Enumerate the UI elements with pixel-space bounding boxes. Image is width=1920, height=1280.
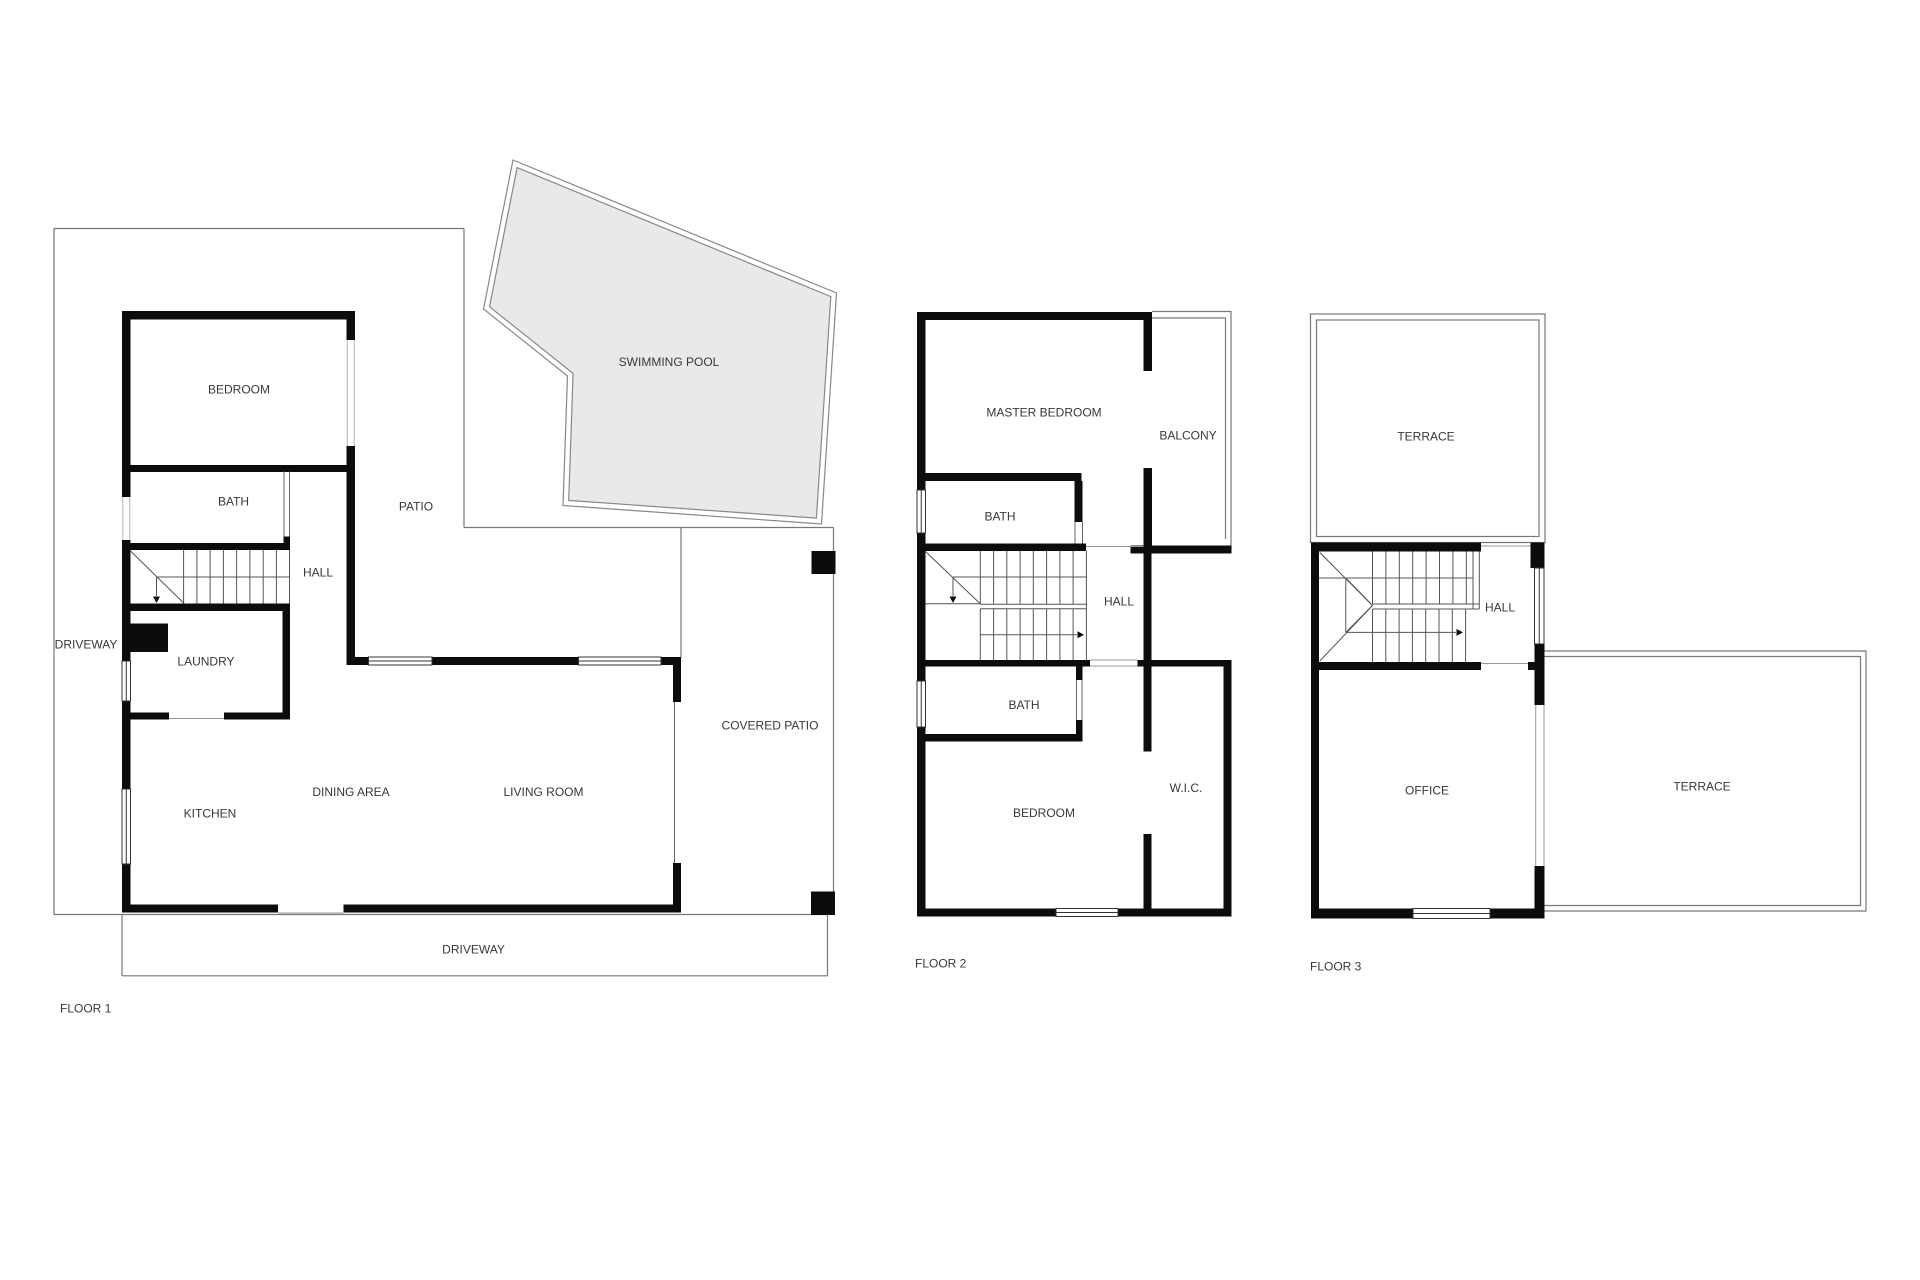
svg-text:DINING AREA: DINING AREA [312, 785, 389, 799]
svg-text:HALL: HALL [303, 566, 333, 580]
svg-text:BATH: BATH [984, 510, 1015, 524]
svg-text:MASTER BEDROOM: MASTER BEDROOM [986, 406, 1101, 420]
svg-text:HALL: HALL [1485, 601, 1515, 615]
svg-text:DRIVEWAY: DRIVEWAY [442, 943, 505, 957]
svg-text:TERRACE: TERRACE [1673, 780, 1730, 794]
svg-text:SWIMMING POOL: SWIMMING POOL [619, 355, 720, 369]
svg-text:FLOOR 3: FLOOR 3 [1310, 960, 1362, 974]
svg-text:DRIVEWAY: DRIVEWAY [55, 638, 118, 652]
svg-text:TERRACE: TERRACE [1397, 430, 1454, 444]
svg-text:FLOOR 1: FLOOR 1 [60, 1002, 112, 1016]
svg-text:BALCONY: BALCONY [1159, 429, 1216, 443]
svg-text:PATIO: PATIO [399, 500, 433, 514]
svg-text:BEDROOM: BEDROOM [1013, 806, 1075, 820]
svg-text:HALL: HALL [1104, 595, 1134, 609]
svg-text:LAUNDRY: LAUNDRY [177, 655, 234, 669]
svg-text:W.I.C.: W.I.C. [1170, 781, 1203, 795]
svg-text:BATH: BATH [218, 495, 249, 509]
svg-text:LIVING ROOM: LIVING ROOM [503, 785, 583, 799]
svg-text:BATH: BATH [1008, 698, 1039, 712]
svg-text:BEDROOM: BEDROOM [208, 383, 270, 397]
svg-text:COVERED PATIO: COVERED PATIO [722, 719, 819, 733]
svg-text:OFFICE: OFFICE [1405, 784, 1449, 798]
svg-text:FLOOR 2: FLOOR 2 [915, 957, 967, 971]
svg-text:KITCHEN: KITCHEN [184, 807, 237, 821]
